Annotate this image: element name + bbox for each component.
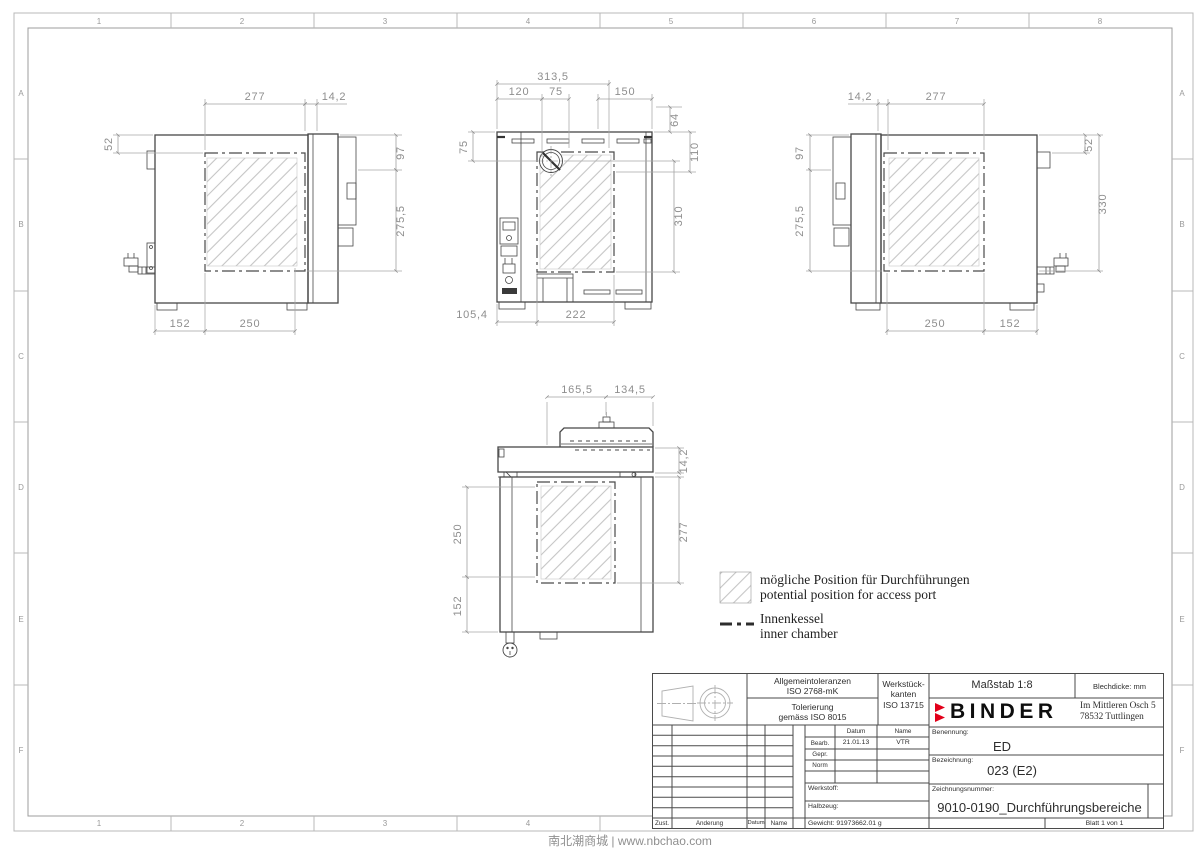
binder-logo-arrows-icon <box>935 703 945 722</box>
datum-column-header: Datum <box>835 728 877 735</box>
dim-label: 165,5 <box>561 384 593 396</box>
tolerance-standard: Tolerierung <box>747 702 878 712</box>
grid-col-label: 8 <box>1098 17 1103 26</box>
dim-label: 97 <box>794 146 806 160</box>
dim-label: 14,2 <box>678 449 690 474</box>
dim-label: 330 <box>1097 194 1109 215</box>
company-address: 78532 Tuttlingen <box>1080 712 1162 722</box>
grid-col-label: 1 <box>97 819 102 828</box>
dim-label: 277 <box>245 91 266 103</box>
grid-row-label: E <box>18 615 23 624</box>
grid-row-label: B <box>1179 220 1184 229</box>
power-plug-icon <box>503 632 517 657</box>
knob-icon <box>599 412 614 428</box>
binder-logo-wordmark: BINDER <box>950 700 1058 724</box>
name-column-label: Name <box>765 820 793 827</box>
benennung-value: ED <box>952 739 1052 754</box>
dim-label: 250 <box>452 524 464 545</box>
dim-label: 277 <box>926 91 947 103</box>
tolerance-standard: gemäss ISO 8015 <box>747 712 878 722</box>
tolerance-standard: Allgemeintoleranzen <box>747 676 878 686</box>
dim-label: 310 <box>673 206 685 227</box>
halbzeug-label: Halbzeug: <box>808 803 888 810</box>
legend-inner-chamber-en: inner chamber <box>760 626 838 642</box>
dim-label: 75 <box>549 86 563 98</box>
grid-col-label: 7 <box>955 17 960 26</box>
drawing-sheet: 1 2 3 4 5 6 7 8 1 2 3 4 A B C D E F A B … <box>0 0 1200 848</box>
bezeichnung-value: 023 (E2) <box>962 763 1062 778</box>
view-rear: 313,5 120 75 150 75 64 110 310 105,4 222 <box>456 71 701 326</box>
grid-col-label: 6 <box>812 17 817 26</box>
grid-row-label: C <box>18 352 24 361</box>
grid-row-label: C <box>1179 352 1185 361</box>
dim-label: 152 <box>452 596 464 617</box>
grid-row-label: D <box>18 483 24 492</box>
bearb-row-label: Bearb. <box>805 740 835 747</box>
dim-label: 222 <box>566 309 587 321</box>
grid-col-label: 4 <box>526 17 531 26</box>
dim-label: 250 <box>240 318 261 330</box>
dim-label: 120 <box>509 86 530 98</box>
grid-col-label: 3 <box>383 819 388 828</box>
dim-label: 152 <box>1000 318 1021 330</box>
dim-label: 14,2 <box>322 91 347 103</box>
dim-label: 52 <box>103 137 115 151</box>
title-block: Allgemeintoleranzen ISO 2768-mK Tolerier… <box>652 673 1164 829</box>
grid-row-label: F <box>1180 746 1185 755</box>
norm-row-label: Norm <box>805 762 835 769</box>
dim-label: 152 <box>170 318 191 330</box>
dim-label: 277 <box>678 522 690 543</box>
drawing-number-value: 9010-0190_Durchführungsbereiche <box>931 800 1148 815</box>
dim-label: 275,5 <box>395 205 407 237</box>
legend-swatches <box>720 572 754 624</box>
dim-label: 97 <box>395 146 407 160</box>
legend-access-port-de: mögliche Position für Durchführungen <box>760 572 970 588</box>
grid-row-label: E <box>1179 615 1184 624</box>
grid-row-label: D <box>1179 483 1185 492</box>
dim-label: 105,4 <box>456 309 488 321</box>
dim-label: 134,5 <box>614 384 646 396</box>
hatch-swatch-icon <box>720 572 751 603</box>
dim-label: 250 <box>925 318 946 330</box>
grid-row-label: F <box>19 746 24 755</box>
access-port-region <box>889 158 979 266</box>
dim-label: 275,5 <box>794 205 806 237</box>
grid-row-label: B <box>18 220 23 229</box>
grid-col-label: 3 <box>383 17 388 26</box>
drawing-number-label: Zeichnungsnummer: <box>932 786 1052 793</box>
company-address: Im Mittleren Ösch 5 <box>1080 701 1162 711</box>
power-plug-icon <box>124 253 155 274</box>
grid-col-label: 5 <box>669 17 674 26</box>
edge-standard: kanten <box>878 689 929 699</box>
access-port-region <box>541 486 611 579</box>
grid-col-label: 1 <box>97 17 102 26</box>
legend-inner-chamber-de: Innenkessel <box>760 611 824 627</box>
scale-value: Maßstab 1:8 <box>929 679 1075 691</box>
gepr-row-label: Gepr. <box>805 751 835 758</box>
dim-label: 14,2 <box>848 91 873 103</box>
zust-column-label: Zust. <box>652 820 672 827</box>
edge-standard: ISO 13715 <box>878 700 929 710</box>
aenderung-column-label: Änderung <box>672 820 747 827</box>
watermark: 南北潮商城 | www.nbchao.com <box>430 832 830 848</box>
grid-col-label: 2 <box>240 17 245 26</box>
projection-symbol-icon <box>657 685 733 721</box>
edge-standard: Werkstück- <box>878 679 929 689</box>
view-left-side: 277 14,2 52 97 275,5 152 250 <box>103 91 407 335</box>
dim-label: 313,5 <box>537 71 569 83</box>
view-top: 165,5 134,5 14,2 277 250 152 <box>452 384 690 657</box>
electrical-components <box>500 218 518 294</box>
dim-label: 150 <box>615 86 636 98</box>
name-column-header: Name <box>877 728 929 735</box>
grid-col-label: 2 <box>240 819 245 828</box>
grid-col-label: 4 <box>526 819 531 828</box>
grid-row-label: A <box>18 89 24 98</box>
tolerance-standard: ISO 2768-mK <box>747 686 878 696</box>
werkstoff-label: Werkstoff: <box>808 785 888 792</box>
dim-label: 64 <box>669 113 681 127</box>
dim-label: 52 <box>1083 138 1095 152</box>
sheet-number: Blatt 1 von 1 <box>1045 820 1164 827</box>
sheet-thickness: Blechdicke: mm <box>1075 682 1164 691</box>
benennung-label: Benennung: <box>932 729 1022 736</box>
grid-row-label: A <box>1179 89 1185 98</box>
dim-label: 75 <box>458 140 470 154</box>
bearb-name: VTR <box>877 739 929 746</box>
weight-value: Gewicht: 91973662.01 g <box>808 820 926 827</box>
legend-access-port-en: potential position for access port <box>760 587 936 603</box>
view-right-side: 14,2 277 97 275,5 52 330 250 152 <box>794 91 1109 335</box>
bearb-date: 21.01.13 <box>835 739 877 746</box>
access-port-region <box>207 158 297 266</box>
dim-label: 110 <box>689 142 701 162</box>
datum-column-label: Datum <box>747 820 765 826</box>
